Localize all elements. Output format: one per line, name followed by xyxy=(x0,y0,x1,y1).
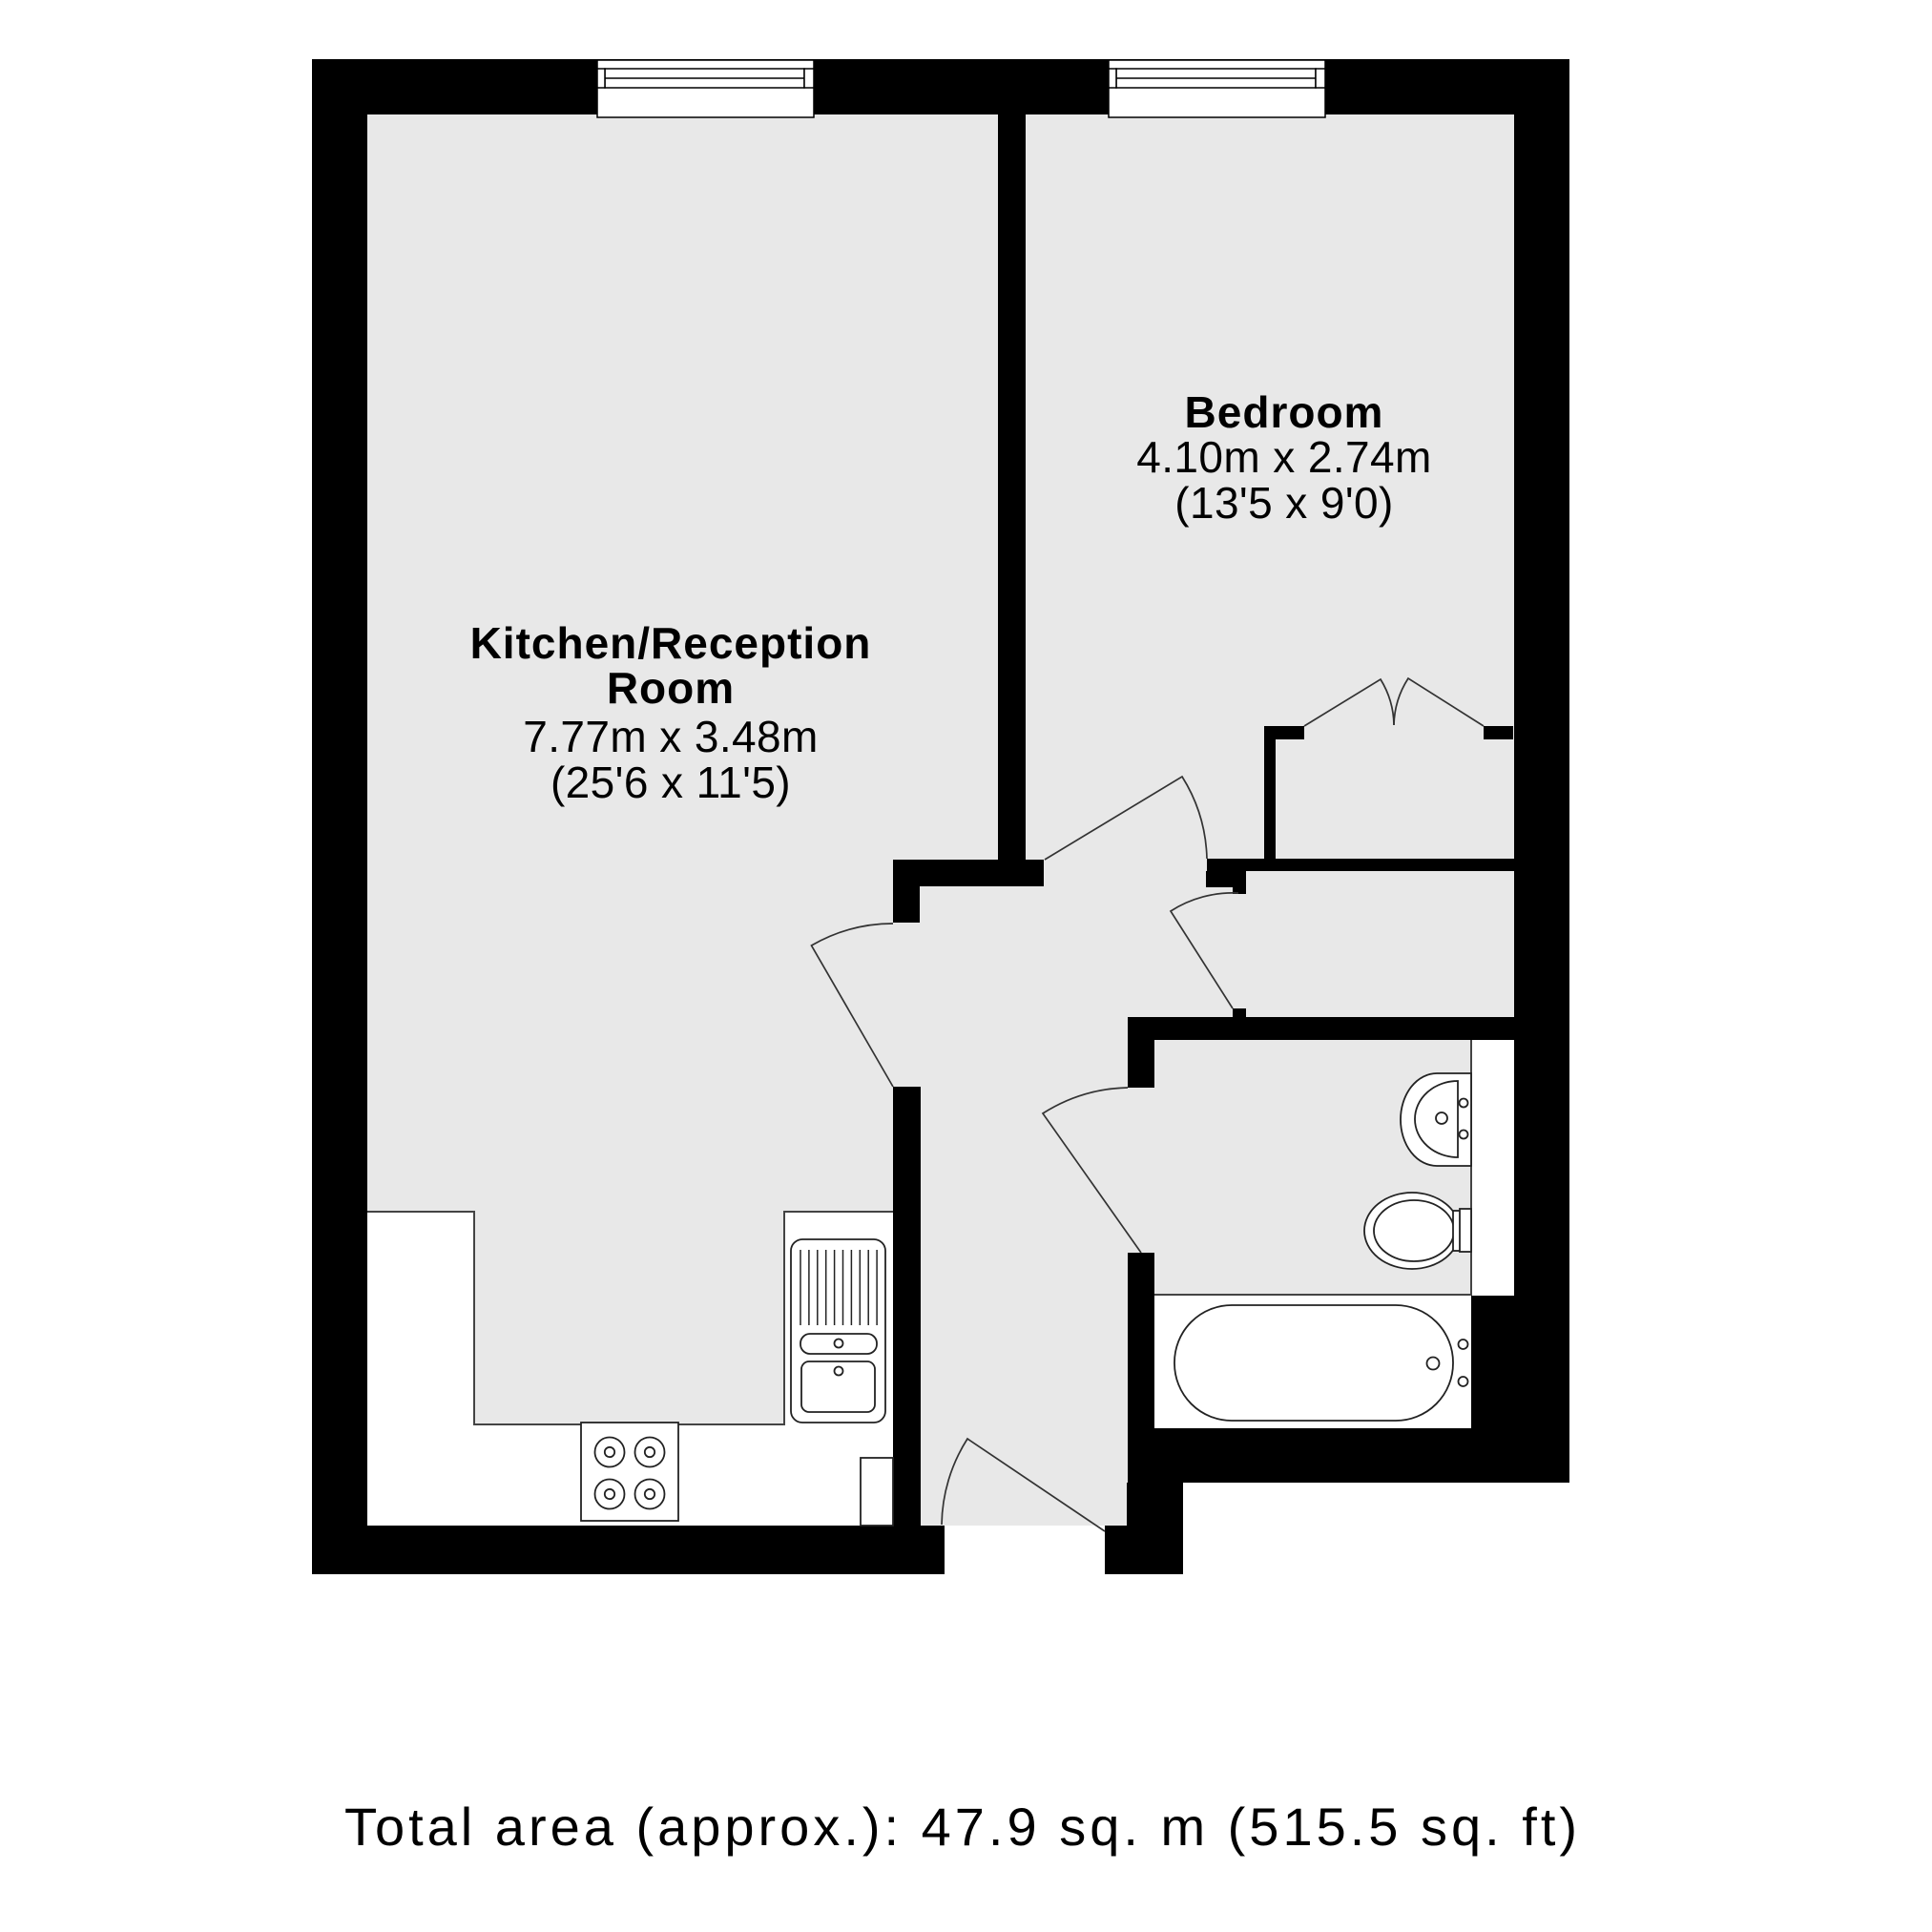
svg-text:4.10m x 2.74m: 4.10m x 2.74m xyxy=(1136,432,1431,482)
svg-text:7.77m x 3.48m: 7.77m x 3.48m xyxy=(523,712,818,761)
svg-text:(25'6 x 11'5): (25'6 x 11'5) xyxy=(551,758,791,807)
svg-text:Kitchen/Reception: Kitchen/Reception xyxy=(470,618,872,668)
svg-text:(13'5 x 9'0): (13'5 x 9'0) xyxy=(1174,478,1393,528)
svg-text:Bedroom: Bedroom xyxy=(1185,387,1384,437)
svg-text:Room: Room xyxy=(607,663,735,713)
svg-text:Total area (approx.): 47.9 sq.: Total area (approx.): 47.9 sq. m (515.5 … xyxy=(344,1797,1581,1857)
